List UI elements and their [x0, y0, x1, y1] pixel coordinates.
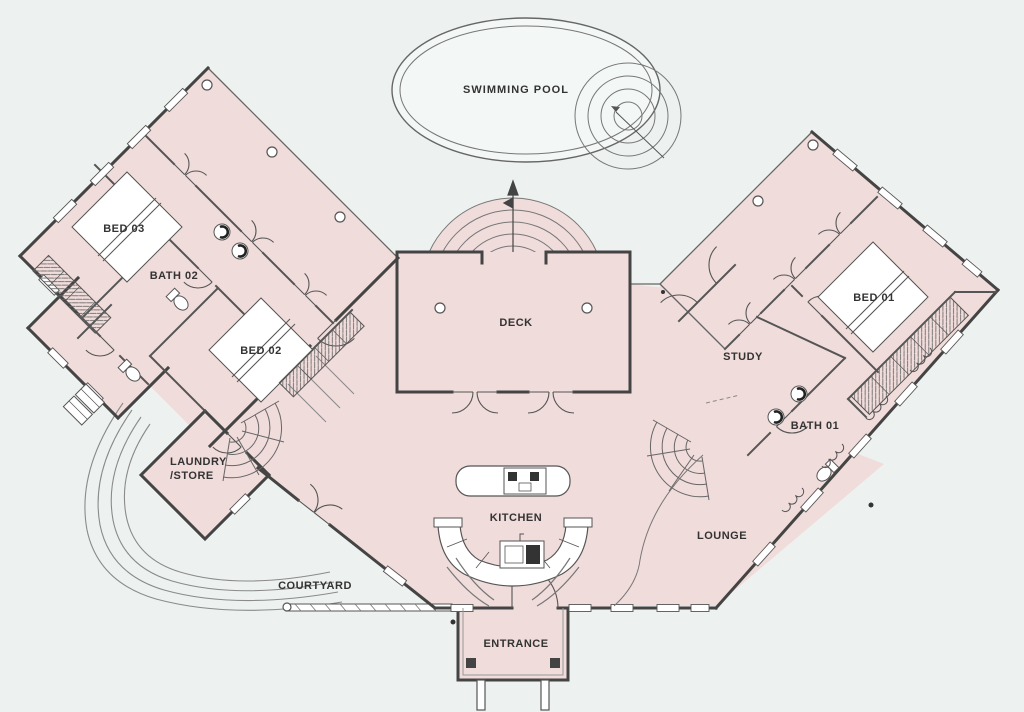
label-bed-02: BED 02 — [240, 345, 282, 357]
kitchen-island — [456, 466, 570, 496]
label-study: STUDY — [723, 351, 763, 363]
window — [657, 605, 679, 612]
courtyard-rail — [283, 603, 452, 611]
label-kitchen: KITCHEN — [490, 512, 542, 524]
floor-plan-canvas — [0, 0, 1024, 712]
label-laundry-line1: LAUNDRY — [170, 455, 227, 469]
label-laundry-store: LAUNDRY /STORE — [170, 455, 227, 483]
label-bath-02: BATH 02 — [150, 270, 199, 282]
column — [582, 303, 592, 313]
basin — [232, 243, 248, 259]
rail-end-post — [283, 603, 291, 611]
floor-plan-page: SWIMMING POOL BED 03 BATH 02 BED 02 LAUN… — [0, 0, 1024, 712]
porch-column — [466, 658, 476, 668]
label-laundry-line2: /STORE — [170, 469, 227, 483]
column — [335, 212, 345, 222]
basin — [214, 224, 230, 240]
column — [435, 303, 445, 313]
window — [451, 605, 473, 612]
basin — [768, 409, 784, 425]
label-swimming-pool: SWIMMING POOL — [463, 84, 569, 96]
label-deck: DECK — [499, 317, 532, 329]
column — [753, 196, 763, 206]
window — [569, 605, 591, 612]
label-courtyard: COURTYARD — [278, 580, 352, 592]
label-bath-01: BATH 01 — [791, 420, 840, 432]
basin — [791, 386, 807, 402]
label-bed-01: BED 01 — [853, 292, 895, 304]
porch-column — [550, 658, 560, 668]
column — [267, 147, 277, 157]
label-entrance: ENTRANCE — [483, 638, 548, 650]
column — [202, 80, 212, 90]
label-lounge: LOUNGE — [697, 530, 747, 542]
column — [808, 140, 818, 150]
label-bed-03: BED 03 — [103, 223, 145, 235]
window — [691, 605, 709, 612]
